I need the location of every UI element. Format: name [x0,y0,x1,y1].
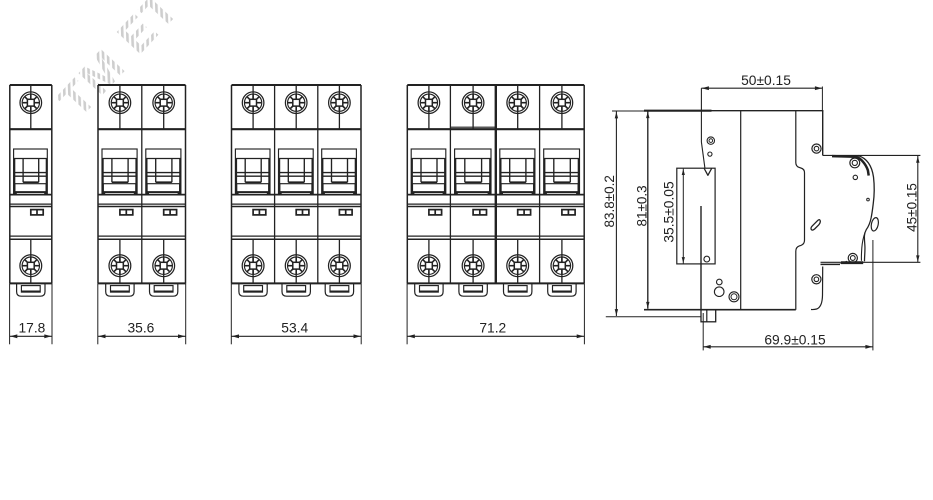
svg-text:53.4: 53.4 [281,320,308,335]
svg-text:69.9±0.15: 69.9±0.15 [764,333,826,348]
svg-text:81±0.3: 81±0.3 [634,185,649,226]
svg-text:50±0.15: 50±0.15 [741,73,791,88]
svg-text:45±0.15: 45±0.15 [904,183,919,232]
svg-text:35.5±0.05: 35.5±0.05 [661,181,676,243]
svg-text:35.6: 35.6 [127,320,154,335]
svg-text:17.8: 17.8 [18,320,45,335]
svg-text:71.2: 71.2 [479,320,506,335]
svg-text:83.8±0.2: 83.8±0.2 [602,175,617,227]
